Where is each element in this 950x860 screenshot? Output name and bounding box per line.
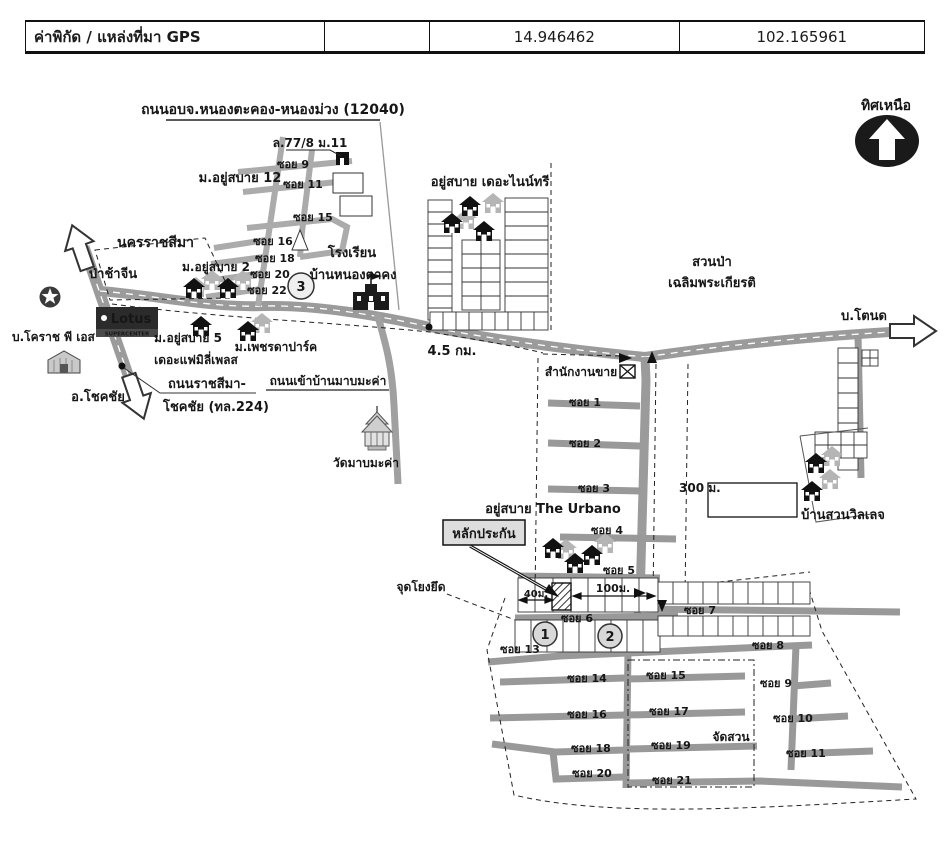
map-page: ค่าพิกัด / แหล่งที่มา GPS 14.946462 102.… xyxy=(0,0,950,860)
nakhon-ratchasima-label: นครราชสีมา xyxy=(117,235,194,251)
tanod-label: บ.โตนด xyxy=(841,307,887,324)
urbano-label: อยู่สบาย The Urbano xyxy=(485,502,621,517)
soi18-label: ซอย 18 xyxy=(255,252,295,265)
highway-224-label-2: โชคชัย (ทล.224) xyxy=(162,398,269,415)
soi18b-label: ซอย 18 xyxy=(571,742,611,755)
street-soi4 xyxy=(560,537,676,539)
soi7-label: ซอย 7 xyxy=(684,604,716,617)
garden-label: จัดสวน xyxy=(712,730,750,744)
makha-entry-label: ถนนเข้าบ้านมาบมะค่า xyxy=(270,374,387,388)
sales-office-icon xyxy=(620,365,635,378)
plot-block xyxy=(430,312,548,330)
distance-100m-label: 100ม. xyxy=(596,582,630,595)
soi22-label: ซอย 22 xyxy=(247,284,287,297)
marker-3-label: 3 xyxy=(296,280,305,295)
road-300m-segment xyxy=(640,357,646,600)
soi11b-label: ซอย 11 xyxy=(786,747,826,760)
anchor-point-dashed xyxy=(447,594,515,620)
soi19-label: ซอย 19 xyxy=(651,739,691,752)
moo2-label: ม.อยู่สบาย 2 xyxy=(182,260,250,275)
school-label-1: โรงเรียน xyxy=(327,244,376,261)
house-icon xyxy=(482,193,504,213)
house-77-label: ล.77/8 ม.11 xyxy=(273,136,348,150)
chokchai-label: อ.โชคชัย xyxy=(71,388,125,405)
street-soi7 xyxy=(641,609,900,612)
soi20b-label: ซอย 20 xyxy=(572,767,612,780)
north-label: ทิศเหนือ xyxy=(861,98,911,114)
house-icon xyxy=(459,196,481,216)
top-road-label: ถนนอบจ.หนองตะคอง-หนองม่วง (12040) xyxy=(141,102,405,118)
moo5-label-2: เดอะแฟมิลี่เพลส xyxy=(154,351,238,367)
distance-dot-45km xyxy=(426,324,433,331)
street-soi9b xyxy=(793,683,831,686)
building-rect-2 xyxy=(340,196,372,216)
baansuan-label: บ้านสวนวิลเลจ xyxy=(801,507,885,523)
soi3-label: ซอย 3 xyxy=(578,482,610,495)
location-map: Lotus SUPERCENTER xyxy=(0,0,950,860)
house-icon xyxy=(801,481,823,501)
soi15-label: ซอย 15 xyxy=(293,211,333,224)
korat-ps-label: บ.โคราช พี เอส xyxy=(12,329,96,344)
soi2-label: ซอย 2 xyxy=(569,437,601,450)
marker-2-label: 2 xyxy=(605,630,614,645)
soi13-label: ซอย 13 xyxy=(500,643,540,656)
phetda-label: ม.เพชรดาปาร์ค xyxy=(235,340,317,354)
soi15b-label: ซอย 15 xyxy=(646,669,686,682)
distance-40m-label: 40ม. xyxy=(524,589,548,600)
plot-row-north xyxy=(658,582,810,604)
lotus-logo-text: Lotus xyxy=(111,312,152,327)
collateral-plot-hatched xyxy=(552,583,571,610)
soi14-label: ซอย 14 xyxy=(567,672,607,685)
lotus-supercenter-logo: Lotus SUPERCENTER xyxy=(96,307,158,338)
ninetree-label: อยู่สบาย เดอะไนน์ทรี xyxy=(431,173,550,190)
forest-label-1: สวนป่า xyxy=(692,255,732,270)
marker-1-label: 1 xyxy=(540,628,549,643)
lotus-logo-subtext: SUPERCENTER xyxy=(105,332,150,338)
soi1-label: ซอย 1 xyxy=(569,396,601,409)
road300-east-boundary-1 xyxy=(653,364,656,598)
soi20-label: ซอย 20 xyxy=(250,268,290,281)
soi8-label: ซอย 8 xyxy=(752,639,784,652)
street-soi6 xyxy=(515,616,678,618)
warehouse-icon xyxy=(48,351,80,373)
soi5-label: ซอย 5 xyxy=(603,564,635,577)
house-icon xyxy=(473,221,495,241)
distance-45km-label: 4.5 กม. xyxy=(428,344,477,359)
soi9b-label: ซอย 9 xyxy=(760,677,792,690)
soi9-label: ซอย 9 xyxy=(277,158,309,171)
house-icon xyxy=(183,278,205,298)
soi16-label: ซอย 16 xyxy=(253,235,293,248)
empty-legend-box xyxy=(708,483,797,517)
house-icon xyxy=(542,538,564,558)
urbano-west-boundary xyxy=(535,358,538,598)
soi10-label: ซอย 10 xyxy=(773,712,813,725)
triangle-marker xyxy=(292,230,308,250)
anchor-point-label: จุดโยงยึด xyxy=(397,579,446,595)
soi17-label: ซอย 17 xyxy=(649,705,689,718)
temple-icon xyxy=(362,406,392,450)
ninetree-estate-plots xyxy=(428,198,548,330)
house-77-door xyxy=(340,158,344,165)
arrow-to-tanod xyxy=(890,316,936,346)
plot-row-south xyxy=(658,616,810,636)
highway-224-label-1: ถนนราชสีมา- xyxy=(168,376,246,392)
soi6-label: ซอย 6 xyxy=(561,612,593,625)
building-rect-1 xyxy=(333,173,363,193)
collateral-label: หลักประกัน xyxy=(452,527,515,542)
north-compass: ทิศเหนือ xyxy=(855,98,919,167)
star-landmark-icon xyxy=(40,287,61,308)
school-label-2: บ้านหนองตาคง xyxy=(310,267,397,283)
plot-block xyxy=(505,198,548,312)
forest-label-2: เฉลิมพระเกียรติ xyxy=(668,275,756,291)
collateral-arrow-inner xyxy=(470,546,551,592)
soi21-label: ซอย 21 xyxy=(652,774,692,787)
street-soi19 xyxy=(628,746,757,749)
soi16b-label: ซอย 16 xyxy=(567,708,607,721)
moo12-label: ม.อยู่สบาย 12 xyxy=(199,171,282,186)
wat-label: วัดมาบมะค่า xyxy=(333,456,399,470)
soi11-label: ซอย 11 xyxy=(283,178,323,191)
sales-office-label: สำนักงานขาย xyxy=(545,365,617,379)
soi4-label: ซอย 4 xyxy=(591,524,623,537)
distance-300m-label: 300 ม. xyxy=(679,481,721,495)
moo5-label-1: ม.อยู่สบาย 5 xyxy=(154,331,222,346)
cemetery-label: ป่าช้าจีน xyxy=(89,266,137,282)
